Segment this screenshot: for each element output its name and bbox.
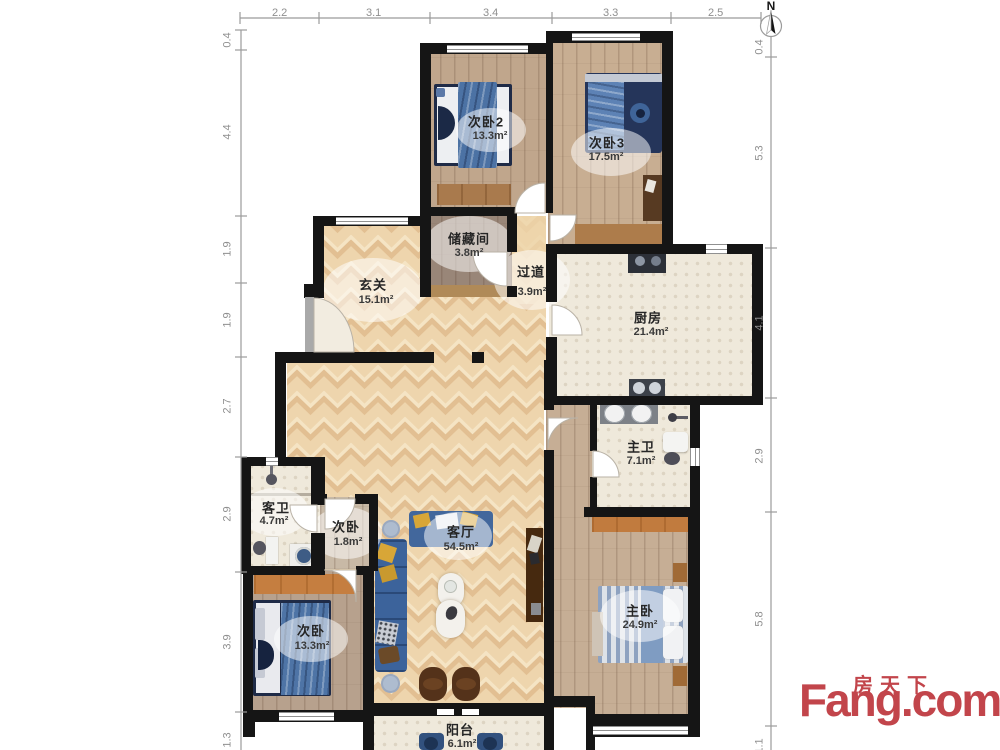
svg-text:N: N xyxy=(767,0,776,13)
